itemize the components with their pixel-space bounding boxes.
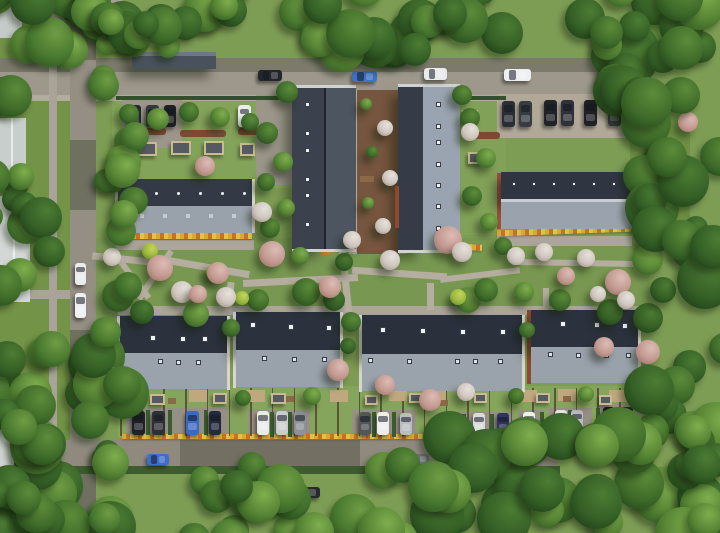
car-roof-highlight [77, 306, 84, 313]
left-road-shade-2 [70, 140, 96, 210]
right-tree-belt [676, 415, 710, 449]
skylight [436, 162, 441, 167]
car-windshield [76, 297, 84, 304]
garden-patio [189, 390, 207, 402]
skylight [220, 191, 225, 196]
garden-blossom [327, 359, 349, 381]
skylight [594, 322, 600, 328]
car-roof-highlight [271, 72, 278, 79]
car-windshield [546, 104, 556, 111]
left-avenue-trees [92, 444, 129, 481]
court-east-building-roof-east [423, 87, 460, 250]
far-left-trees [1, 409, 37, 445]
parked-car [209, 411, 221, 435]
blossom-tree [535, 243, 553, 261]
blossom-tree [577, 249, 595, 267]
car-windshield [429, 69, 435, 78]
skylight [407, 359, 412, 364]
garden-shed [271, 393, 286, 404]
car-roof-highlight [211, 423, 219, 430]
right-tree-belt [624, 365, 674, 415]
skylight [500, 329, 506, 335]
aerial-site-photo [0, 0, 720, 533]
skylight [498, 359, 503, 364]
skylight [572, 182, 576, 186]
garden-blossom [252, 202, 272, 222]
car-windshield [210, 415, 219, 421]
park-tree [291, 247, 309, 265]
picnic-table [168, 398, 176, 404]
bottom-road-shade [180, 440, 360, 466]
court-west-building-ridge [324, 88, 326, 249]
skylight [368, 358, 373, 363]
hedge [116, 96, 292, 100]
left-avenue-trees [114, 272, 142, 300]
park-tree [130, 300, 154, 324]
south-rowhouse-2-roof-dark [236, 312, 340, 350]
stall-hedge [270, 412, 274, 437]
stall-hedge [168, 410, 172, 435]
garden-blossom [594, 337, 614, 357]
car-windshield [151, 455, 157, 463]
skylight [196, 360, 201, 365]
car-windshield [188, 415, 198, 421]
park-tree [335, 253, 353, 271]
car-roof-highlight [379, 424, 387, 430]
parked-car [276, 411, 288, 435]
garden-shed [536, 393, 550, 403]
park-tree [474, 278, 498, 302]
picnic-table [286, 396, 294, 402]
parked-car [502, 101, 515, 127]
car-roof-highlight [188, 423, 196, 430]
walk-south-east-building [497, 236, 632, 246]
bottom-left-tree-belt [71, 401, 109, 439]
skylight [473, 359, 478, 364]
car-windshield [401, 417, 410, 423]
right-tree-belt [687, 503, 720, 533]
garden-tree [273, 152, 293, 172]
parked-car [400, 413, 412, 435]
parked-van [504, 69, 531, 81]
garden-tree [256, 122, 278, 144]
car-roof-highlight [504, 115, 512, 122]
car-roof-highlight [586, 114, 594, 121]
skylight [626, 353, 631, 358]
skylight [154, 191, 159, 196]
skylight-faint [232, 214, 236, 218]
skylight [560, 321, 566, 327]
road-tree [452, 85, 472, 105]
bottom-tree-belt [408, 461, 459, 512]
bottom-right-tree-belt [501, 420, 547, 466]
skylight [532, 182, 536, 186]
bottom-tree-belt [220, 470, 253, 503]
park-tree [650, 277, 676, 303]
garden-patio [330, 390, 348, 402]
skylight [198, 191, 203, 196]
car-roof-highlight [361, 424, 369, 430]
car-windshield [509, 70, 516, 79]
blossom-tree [319, 276, 341, 298]
courtyard-bush [362, 197, 374, 209]
car-roof-highlight [259, 423, 267, 430]
park-tree [292, 278, 320, 306]
car-windshield [504, 105, 514, 112]
south-rowhouse-2-roof-light [236, 350, 340, 387]
autumn-shrubs [180, 130, 226, 137]
skylight [176, 360, 181, 365]
skylight [150, 335, 156, 341]
car-roof-highlight [77, 274, 84, 280]
skylight [305, 102, 310, 107]
left-avenue-trees [90, 317, 121, 348]
flower-strip [120, 233, 252, 239]
bottom-right-tree-belt [519, 466, 565, 512]
parked-car [424, 68, 447, 80]
parked-car [519, 101, 532, 127]
skylight [612, 182, 616, 186]
skylight [436, 183, 441, 188]
east-rowhouse-facade-edge [501, 199, 641, 202]
park-tree [183, 301, 209, 327]
garden-shed [171, 141, 191, 155]
skylight-faint [163, 214, 167, 218]
east-rowhouse-facade [501, 199, 641, 229]
skylight-faint [140, 214, 144, 218]
garden-shed [213, 393, 227, 404]
skylight [436, 102, 441, 107]
car-windshield [154, 415, 164, 421]
gap-tree [222, 319, 240, 337]
park-tree [549, 289, 571, 311]
skylight [305, 148, 310, 153]
accent-tree [450, 289, 466, 305]
far-left-trees [33, 236, 64, 267]
garden-shed [204, 141, 224, 155]
car-roof-highlight [563, 114, 571, 121]
car-roof-highlight [420, 456, 426, 462]
car-roof-highlight [521, 115, 529, 122]
gap-tree [340, 338, 356, 354]
parked-car [377, 412, 389, 435]
left-avenue-trees [103, 366, 140, 403]
court-east-building-roof-west [398, 87, 423, 250]
walk-south-west-building [116, 240, 254, 250]
car-roof-highlight [546, 114, 554, 121]
far-left-trees [7, 481, 41, 515]
far-left-trees [20, 197, 61, 238]
car-windshield [378, 416, 387, 422]
skylight [326, 325, 332, 331]
blossom-tree [207, 262, 229, 284]
parked-car [544, 100, 557, 126]
garden-tree [480, 213, 498, 231]
skylight [242, 191, 247, 196]
car-roof-highlight [278, 423, 286, 430]
far-left-trees [8, 163, 34, 189]
car-windshield [474, 417, 483, 423]
parked-car [561, 100, 574, 126]
garden-blossom [457, 383, 475, 401]
car-roof-highlight [134, 423, 142, 430]
skylight-faint [186, 214, 190, 218]
gap-tree [519, 322, 535, 338]
skylight [436, 140, 441, 145]
skylight [460, 329, 466, 335]
blossom-tree [452, 242, 472, 262]
skylight [420, 328, 426, 334]
picnic-table [440, 400, 448, 406]
car-roof-highlight [296, 423, 304, 430]
courtyard-bush [366, 146, 378, 158]
garden-tree [210, 107, 230, 127]
left-avenue-trees [89, 503, 120, 533]
bottom-right-tree-belt [570, 478, 622, 530]
skylight-faint [209, 214, 213, 218]
blossom-tree [617, 291, 635, 309]
car-windshield [498, 417, 507, 423]
road-tree [276, 81, 298, 103]
skylight [288, 324, 294, 330]
car-windshield [76, 267, 84, 273]
blossom-tree [216, 287, 236, 307]
car-windshield [295, 415, 304, 421]
courtyard-blossom [382, 170, 398, 186]
skylight [322, 357, 327, 362]
park-path [427, 283, 434, 310]
garden-blossom [419, 389, 441, 411]
blossom-tree [147, 255, 173, 281]
garden-shed [474, 393, 487, 403]
garden-blossom [375, 375, 395, 395]
skylight [305, 131, 310, 136]
blossom-tree [380, 250, 400, 270]
skylight [305, 177, 310, 182]
skylight [202, 336, 208, 342]
garden-tree [147, 108, 169, 130]
skylight [292, 357, 297, 362]
blossom-tree [343, 231, 361, 249]
blossom-tree [557, 267, 575, 285]
blossom-tree [507, 247, 525, 265]
parked-car [75, 263, 86, 285]
skylight [512, 182, 516, 186]
park-tree [514, 282, 534, 302]
stall-hedge [372, 412, 376, 437]
blossom-tree [590, 286, 606, 302]
garden-blossom [636, 340, 660, 364]
garden-shed [150, 394, 165, 405]
parked-car [258, 70, 282, 81]
garden-blossom [461, 123, 479, 141]
car-windshield [586, 104, 596, 111]
east-rowhouse-roof-dark [501, 172, 641, 199]
parked-car [186, 411, 199, 435]
car-windshield [357, 72, 364, 80]
car-windshield [360, 416, 369, 422]
stall-hedge [392, 412, 396, 437]
car-roof-highlight [402, 424, 410, 430]
garden-blossom [195, 156, 215, 176]
skylight [180, 336, 186, 342]
gap-tree [341, 312, 361, 332]
courtyard-blossom [377, 120, 393, 136]
garden-tree [508, 388, 524, 404]
parked-car [584, 100, 597, 126]
parked-car [257, 411, 269, 435]
courtyard-bench [360, 176, 374, 182]
skylight [455, 359, 460, 364]
garden-tree [303, 387, 321, 405]
left-avenue-trees [105, 153, 140, 188]
stall-hedge [204, 410, 208, 435]
garden-fence [229, 388, 231, 436]
top-right-tree-belt [660, 26, 703, 69]
skylight [576, 353, 581, 358]
courtyard-blossom [375, 218, 391, 234]
left-avenue-trees [121, 122, 149, 150]
bottom-right-tree-belt [682, 445, 720, 484]
car-roof-highlight [154, 423, 162, 430]
garden-shed [240, 143, 255, 156]
car-windshield [563, 104, 573, 111]
skylight [552, 182, 556, 186]
south-rowhouse-3-roof-dark [362, 315, 522, 354]
skylight [262, 356, 267, 361]
parked-car [352, 71, 377, 82]
parked-car [147, 454, 169, 465]
court-east-building-brick [395, 186, 399, 228]
blossom-tree [189, 285, 207, 303]
garden-tree [277, 199, 295, 217]
parked-van [75, 293, 86, 318]
skylight [592, 182, 596, 186]
skylight [158, 359, 163, 364]
blossom-tree [103, 248, 121, 266]
car-windshield [521, 105, 531, 112]
skylight [305, 193, 310, 198]
far-left-trees [33, 331, 70, 368]
garden-tree [235, 390, 251, 406]
car-windshield [263, 71, 269, 79]
skylight [250, 322, 256, 328]
skylight [380, 327, 386, 333]
accent-tree [235, 291, 249, 305]
skylight [622, 323, 628, 329]
car-roof-highlight [519, 71, 527, 78]
garden-tree [462, 186, 482, 206]
garden-tree [179, 102, 199, 122]
garden-tree [119, 104, 139, 124]
park-tree [633, 303, 663, 333]
car-windshield [277, 415, 286, 421]
park-tree [247, 289, 269, 311]
blossom-tree [259, 241, 285, 267]
garden-tree [257, 173, 275, 191]
stall-hedge [146, 410, 150, 435]
garden-shed [599, 395, 612, 405]
car-roof-highlight [437, 70, 443, 77]
garden-tree [578, 386, 594, 402]
skylight [436, 124, 441, 129]
courtyard-bush [360, 98, 372, 110]
left-avenue-trees [88, 70, 119, 101]
car-roof-highlight [366, 73, 373, 80]
parked-car [359, 412, 371, 435]
skylight [548, 352, 553, 357]
garden-tree [476, 148, 496, 168]
garden-blossom [678, 112, 698, 132]
court-west-building-roof-east [325, 88, 356, 249]
garden-shed [365, 395, 378, 405]
parked-car [294, 411, 306, 435]
skylight [176, 191, 181, 196]
car-windshield [258, 415, 267, 421]
picnic-table [563, 396, 571, 402]
car-roof-highlight [159, 456, 165, 463]
bottom-right-tree-belt [575, 424, 618, 467]
parked-car [152, 411, 165, 435]
skylight [436, 204, 441, 209]
skylight [305, 222, 310, 227]
stall-hedge [288, 412, 292, 437]
